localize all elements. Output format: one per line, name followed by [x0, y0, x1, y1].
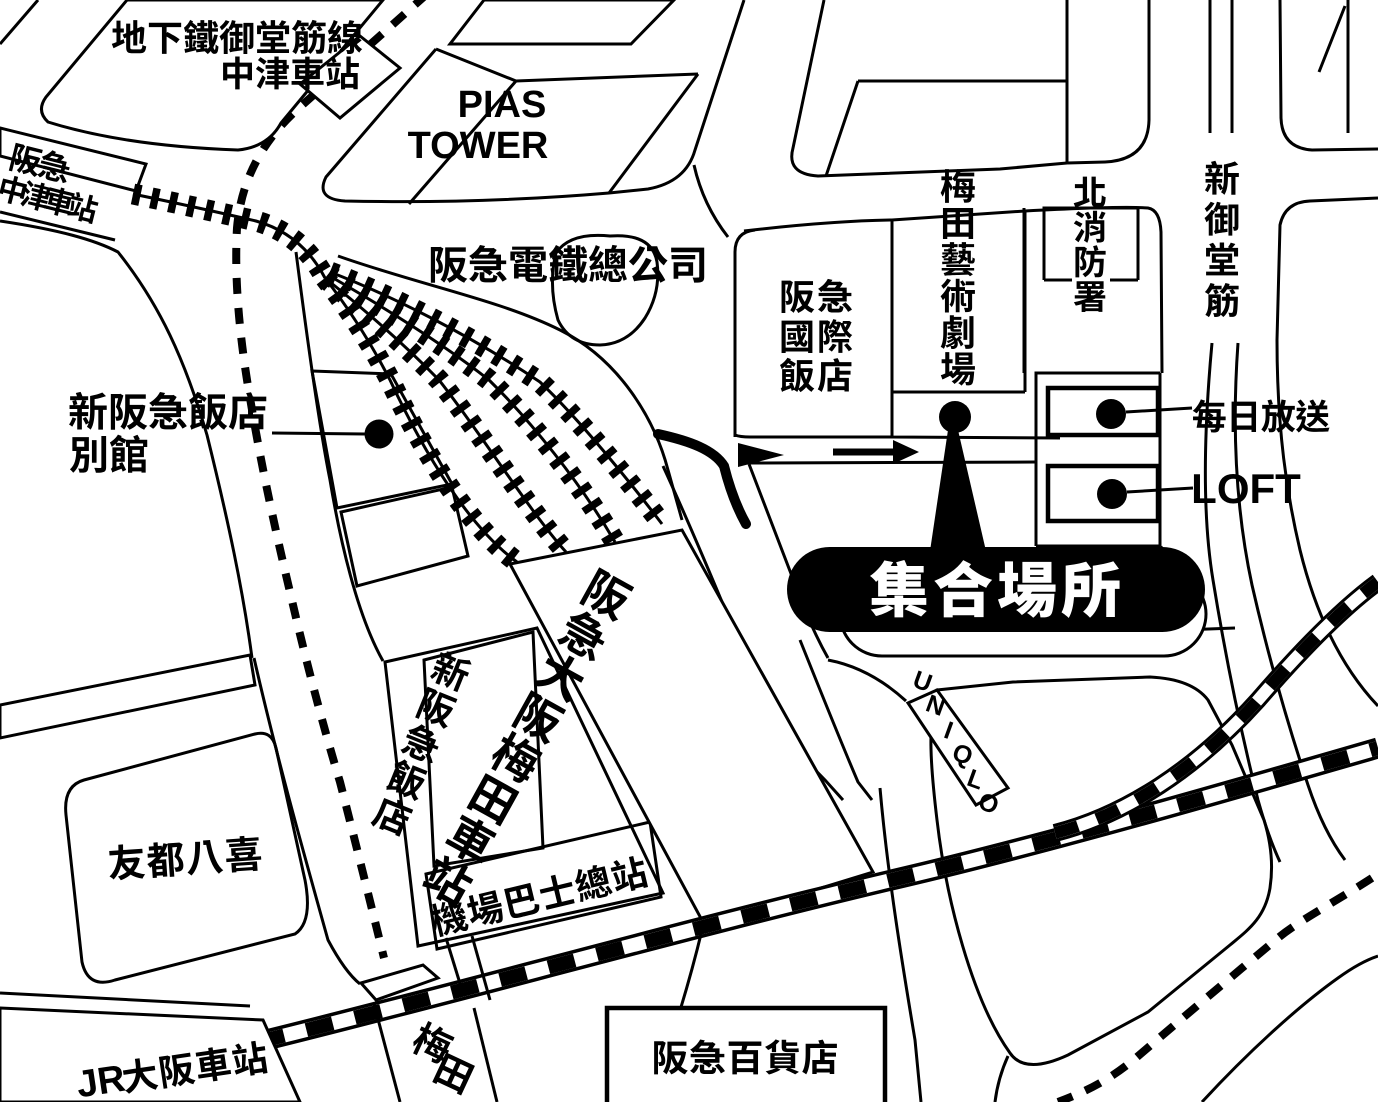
svg-text:JR: JR: [74, 1058, 128, 1102]
svg-text:PIAS: PIAS: [458, 84, 547, 126]
svg-text:TOWER: TOWER: [408, 125, 549, 167]
svg-text:LOFT: LOFT: [1191, 465, 1301, 512]
